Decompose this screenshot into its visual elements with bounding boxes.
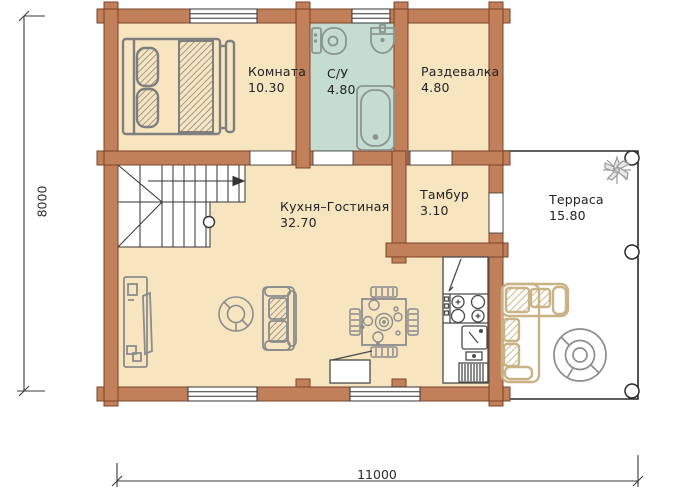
room-label-tambour: Тамбур 3.10	[420, 187, 469, 218]
room-label-bedroom: Комната 10.30	[248, 64, 306, 95]
room-name: Тамбур	[420, 187, 469, 203]
window-icon	[352, 9, 390, 23]
window-icon	[190, 9, 257, 23]
wall-bathroom-dressing	[394, 9, 408, 165]
room-name: Кухня–Гостиная	[280, 199, 389, 215]
door-opening-bathroom	[313, 151, 353, 165]
room-name: С/У	[327, 66, 356, 82]
terrace-floor	[503, 151, 638, 399]
terrace	[503, 151, 639, 399]
room-area: 3.10	[420, 203, 469, 218]
room-area: 4.80	[421, 80, 499, 95]
room-area: 32.70	[280, 215, 389, 230]
room-name: Раздевалка	[421, 64, 499, 80]
plant-icon	[603, 156, 631, 184]
kitchen-block	[443, 257, 488, 383]
room-area: 4.80	[327, 82, 356, 97]
wall-left	[104, 9, 118, 401]
room-name: Комната	[248, 64, 306, 80]
wall-bottom	[104, 387, 504, 401]
dimension-label-height: 8000	[35, 182, 50, 222]
room-area: 15.80	[549, 208, 604, 223]
column-icon	[625, 245, 639, 259]
window-icon	[350, 387, 420, 401]
room-area: 10.30	[248, 80, 306, 95]
door-opening-bedroom	[250, 151, 292, 165]
room-label-kitchen-living: Кухня–Гостиная 32.70	[280, 199, 389, 230]
room-label-dressing: Раздевалка 4.80	[421, 64, 499, 95]
floor-plan: Комната 10.30 С/У 4.80 Раздевалка 4.80 К…	[0, 0, 677, 502]
door-opening-terrace	[489, 193, 503, 233]
window-icon	[188, 387, 257, 401]
column-icon	[625, 384, 639, 398]
room-name: Терраса	[549, 192, 604, 208]
dimension-label-width: 11000	[345, 467, 409, 482]
door-opening-dressing	[410, 151, 452, 165]
room-label-bathroom: С/У 4.80	[327, 66, 356, 97]
room-label-terrace: Терраса 15.80	[549, 192, 604, 223]
wall-tambour-bottom	[386, 243, 503, 257]
